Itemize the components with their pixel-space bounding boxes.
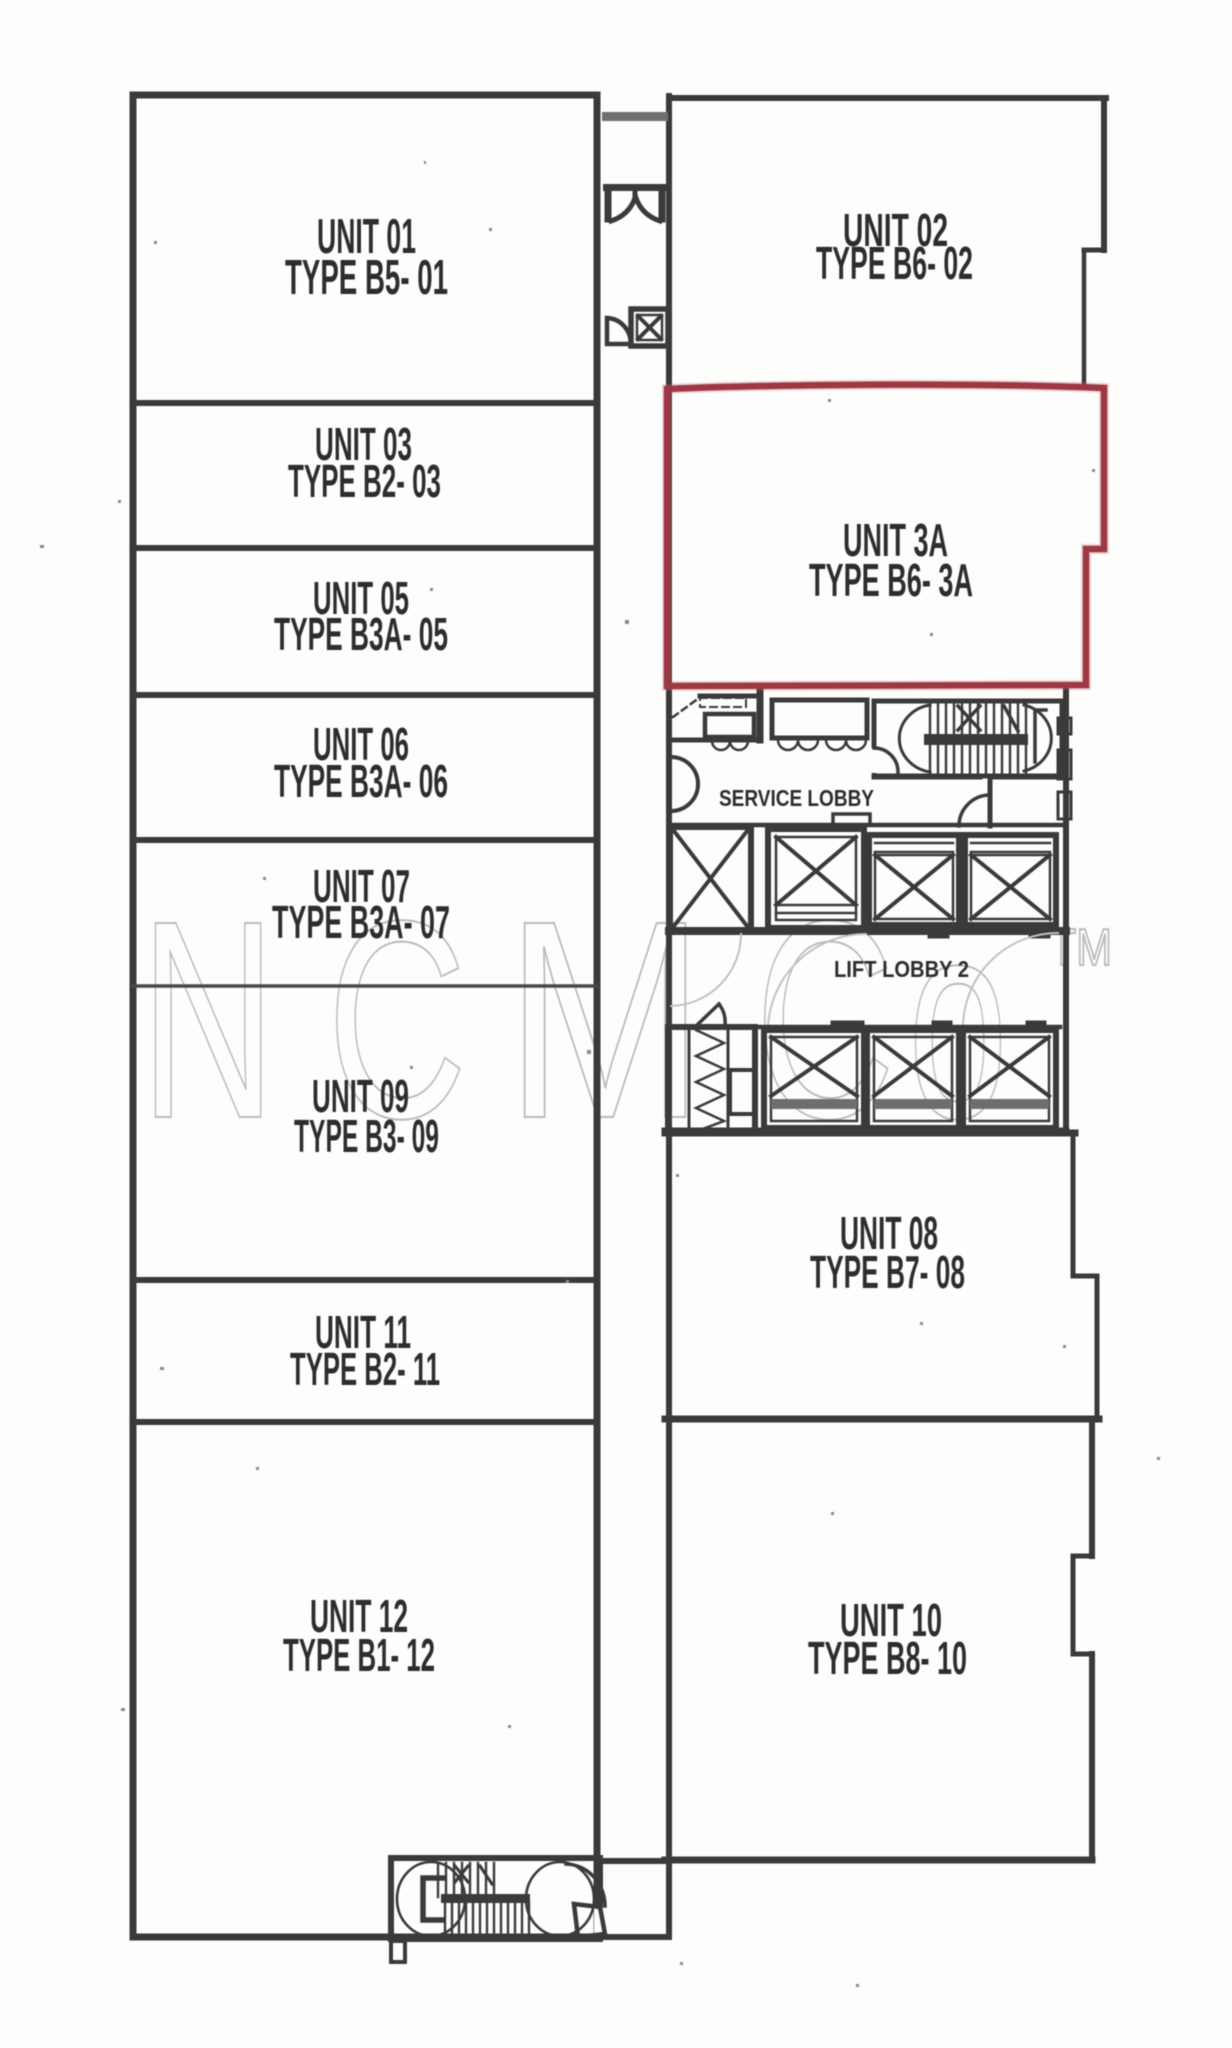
svg-text:TYPE B3A- 06: TYPE B3A- 06 [274, 755, 448, 807]
svg-text:N: N [140, 862, 276, 1177]
svg-text:TYPE B3A- 07: TYPE B3A- 07 [272, 896, 450, 948]
svg-text:TYPE B1- 12: TYPE B1- 12 [283, 1629, 435, 1681]
svg-text:LIFT LOBBY 2: LIFT LOBBY 2 [834, 956, 969, 982]
svg-text:TYPE B6- 02: TYPE B6- 02 [816, 237, 973, 289]
svg-text:TYPE B5- 01: TYPE B5- 01 [285, 251, 448, 305]
svg-text:TYPE B8- 10: TYPE B8- 10 [808, 1632, 967, 1684]
svg-text:TYPE B2- 11: TYPE B2- 11 [290, 1343, 440, 1395]
svg-text:TYPE B3- 09: TYPE B3- 09 [294, 1110, 439, 1162]
svg-text:TYPE B2- 03: TYPE B2- 03 [288, 455, 441, 507]
svg-text:TYPE B7- 08: TYPE B7- 08 [810, 1246, 965, 1298]
svg-text:SERVICE LOBBY: SERVICE LOBBY [719, 785, 874, 811]
svg-text:TYPE B3A- 05: TYPE B3A- 05 [274, 608, 448, 660]
svg-text:TYPE B6- 3A: TYPE B6- 3A [809, 554, 973, 606]
